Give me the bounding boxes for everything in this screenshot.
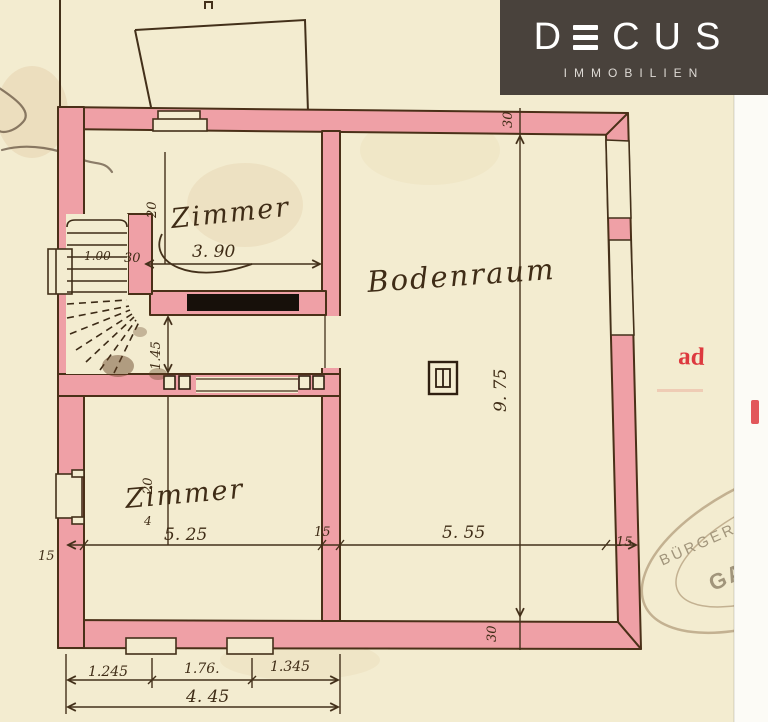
- chimney-block: [187, 294, 299, 311]
- window-right-2: [609, 240, 634, 335]
- stair-chamber: [66, 214, 128, 374]
- chimney-symbol-bodenraum: [429, 362, 457, 394]
- dim-bottom-wall: 30: [485, 625, 500, 642]
- decus-logo: D CUS IMMOBILIEN: [500, 0, 768, 95]
- window-bottom-1: [126, 638, 176, 654]
- dim-bodenraum-depth: 9. 75: [491, 369, 511, 412]
- red-smear: [657, 389, 703, 392]
- scanned-floor-plan-page: Zimmer Bodenraum Zimmer 3. 90 20 1.00 30…: [0, 0, 768, 722]
- floor-plan-drawing: Zimmer Bodenraum Zimmer 3. 90 20 1.00 30…: [0, 0, 768, 722]
- window-left-zimmer: [56, 474, 82, 518]
- dim-zimmer-top-width: 3. 90: [192, 242, 235, 262]
- window-bottom-2: [227, 638, 273, 654]
- logo-subtitle: IMMOBILIEN: [564, 66, 705, 80]
- dim-mid-wall: 15: [314, 525, 331, 540]
- dim-stair-width: 1.00: [84, 249, 111, 263]
- dim-window-left: 1.245: [88, 664, 128, 680]
- dim-window-right: 1.345: [270, 659, 310, 675]
- logo-letters-cus: CUS: [612, 18, 734, 56]
- window-stair-bay: [48, 249, 72, 294]
- dim-total-width: 4. 45: [185, 687, 229, 707]
- door-opening-bodenraum: [321, 316, 341, 368]
- dim-window-mid: 1.76.: [184, 661, 220, 677]
- logo-letter-e-icon: [573, 25, 598, 50]
- chimney-top-wall-b: [153, 119, 207, 131]
- red-stamp-text: ad: [678, 343, 705, 371]
- dim-right-wall: 15: [616, 535, 633, 550]
- dim-top-wall: 30: [501, 111, 516, 128]
- window-right-1: [606, 140, 631, 218]
- wall-top: [58, 107, 628, 135]
- dim-stair-wall: 30: [124, 251, 141, 266]
- logo-wordmark: D CUS: [534, 15, 735, 59]
- dim-bodenraum-width: 5. 55: [442, 523, 485, 543]
- logo-letter-d: D: [534, 18, 561, 56]
- dim-corridor-depth: 1.45: [149, 341, 164, 370]
- dim-zimmer-bottom-depth: 20: [141, 477, 156, 495]
- dim-left-wall: 15: [38, 549, 55, 564]
- red-stamp-fragment: [751, 400, 759, 424]
- dim-tick-4: 4: [143, 514, 152, 528]
- dim-zimmer-bottom-width: 5. 25: [164, 525, 207, 545]
- dim-zimmer-top-depth: 20: [145, 201, 160, 219]
